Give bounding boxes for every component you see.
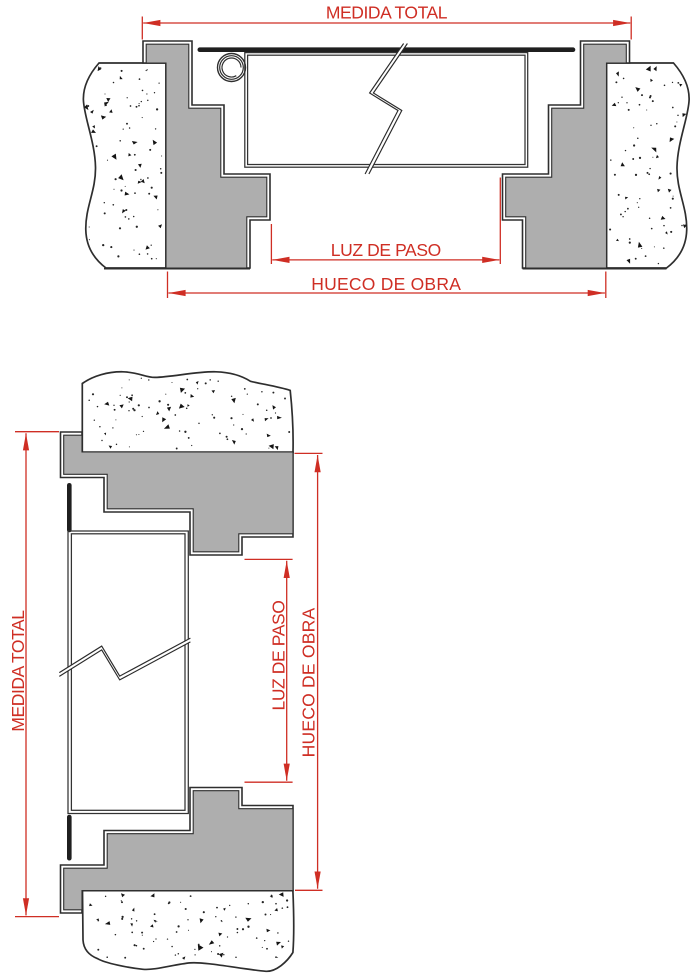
svg-text:LUZ DE PASO: LUZ DE PASO (269, 600, 289, 710)
svg-text:HUECO DE OBRA: HUECO DE OBRA (299, 607, 319, 757)
svg-text:LUZ DE PASO: LUZ DE PASO (331, 240, 441, 260)
svg-text:MEDIDA TOTAL: MEDIDA TOTAL (8, 610, 28, 732)
svg-text:MEDIDA TOTAL: MEDIDA TOTAL (326, 3, 448, 23)
svg-text:HUECO DE OBRA: HUECO DE OBRA (311, 274, 461, 294)
